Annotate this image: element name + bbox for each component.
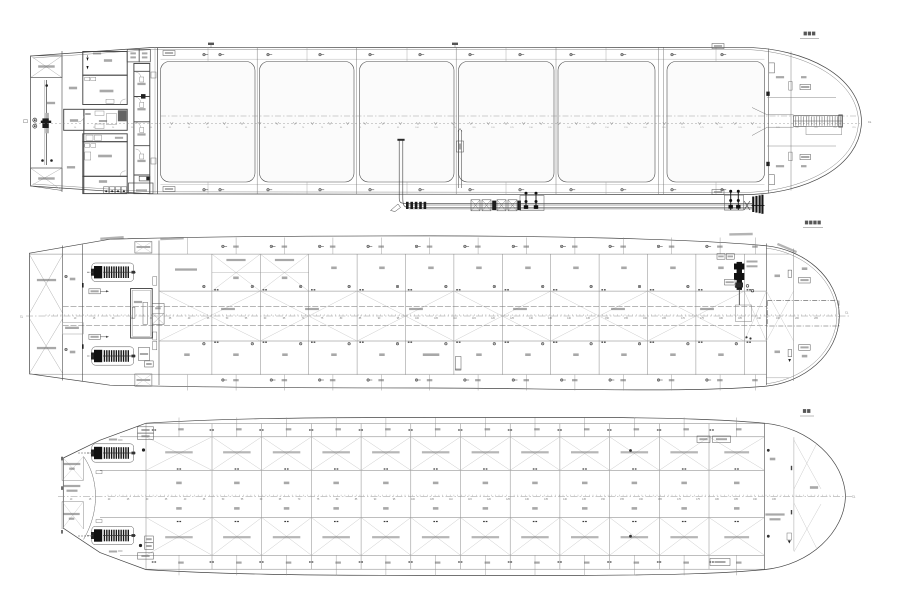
svg-text:CL: CL bbox=[868, 120, 872, 124]
svg-text:CL: CL bbox=[852, 495, 856, 499]
svg-text:CL: CL bbox=[845, 311, 849, 315]
